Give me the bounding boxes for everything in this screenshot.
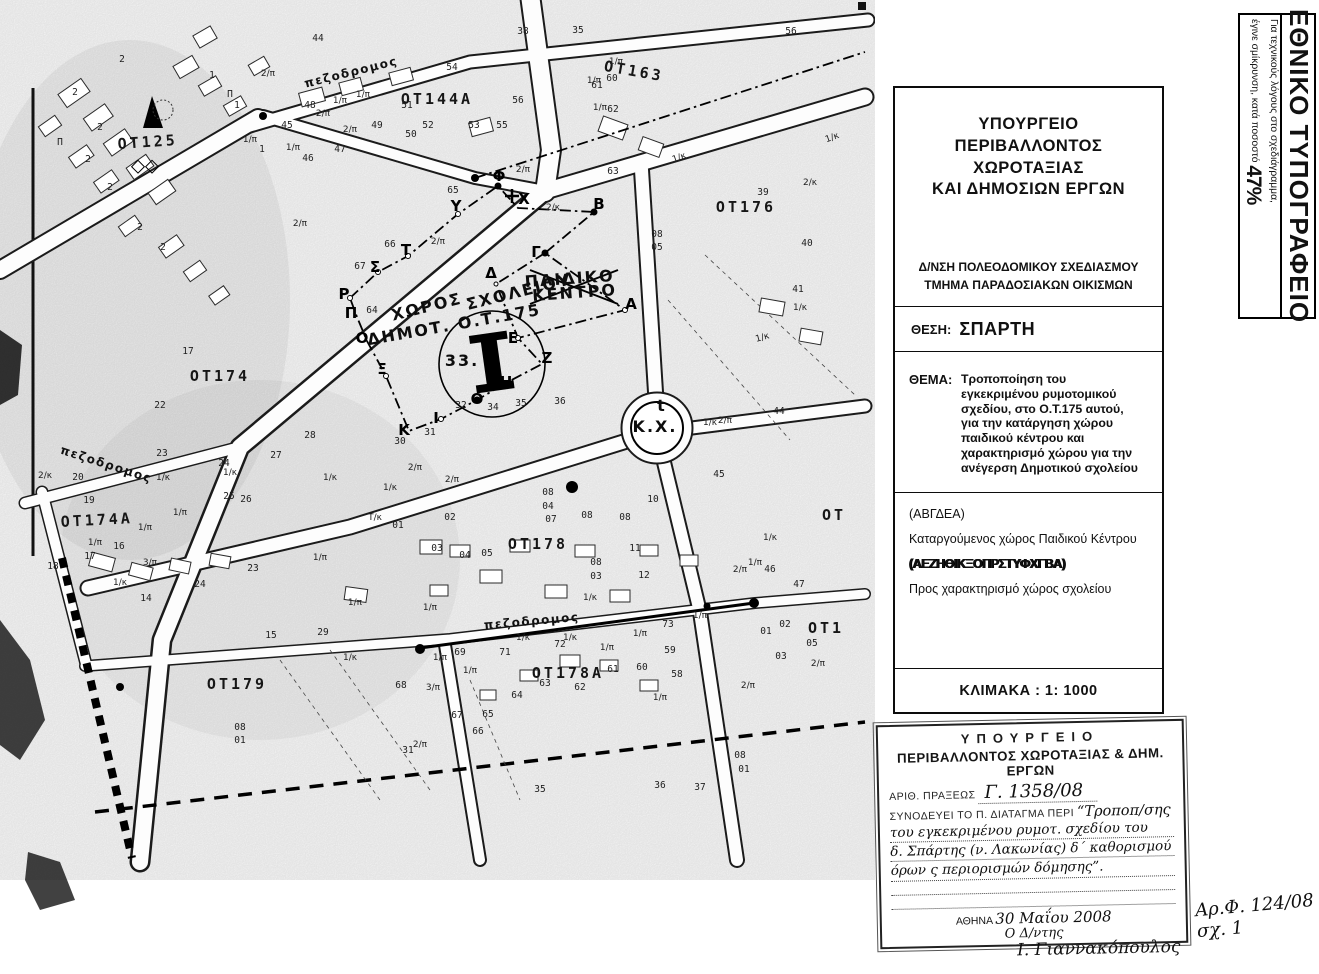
parcel-type-mark: 1/π [693,611,708,621]
ministry-line: ΠΕΡΙΒΑΛΛΟΝΤΟΣ [895,136,1162,158]
parcel-type-mark: 2/π [261,69,276,79]
parcel-number: 1 [234,100,240,111]
decree-value: “Τροποπ/σης [1077,802,1171,820]
parcel-type-mark: 1/π [587,76,602,86]
parcel-number: 22 [154,400,165,411]
parcel-number: 11 [629,543,641,554]
legend-code-2: (ΑΕΖΗΘΙΚΞΟΠΡΣΤΥΦΧΓΒΑ) [909,557,1162,571]
vertex-letter: Ι [433,409,439,427]
parcel-number: 61 [607,664,619,675]
parcel-number: 1 [259,144,265,155]
parcel-type-mark: 1/π [88,538,103,548]
parcel-number: 56 [785,26,797,37]
site-label: Κ.Χ. [633,417,678,436]
legend-section: (ΑΒΓΔΕΑ) Καταργούμενος χώρος Παιδικού Κέ… [895,492,1162,668]
parcel-number: 01 [738,764,750,775]
banner-percent: 47% [1242,165,1265,204]
directorate: Δ/ΝΣΗ ΠΟΛΕΟΔΟΜΙΚΟΥ ΣΧΕΔΙΑΣΜΟΥ [895,258,1162,276]
parcel-type-mark: 1/π [433,653,448,663]
parcel-type-mark: 1/π [243,135,258,145]
vertex-letter: Υ [450,197,463,215]
banner-note-line1: Για τεχνικούς λόγους στο σχεδιάγραμμα, [1268,19,1279,203]
parcel-type-mark: 1/κ [763,533,778,543]
parcel-number: 05 [481,548,492,559]
parcel-number: 2 [137,222,143,233]
ministry-line: ΧΩΡΟΤΑΞΙΑΣ [895,158,1162,180]
parcel-type-mark: 1/κ [343,653,358,663]
parcel-number: 71 [499,647,511,658]
parcel-number: 44 [773,406,785,417]
parcel-number: 48 [304,100,316,111]
parcel-number: 05 [651,242,662,253]
parcel-number: 28 [304,430,316,441]
parcel-number: 66 [384,239,396,250]
parcel-number: 36 [654,780,666,791]
parcel-number: 46 [764,564,776,575]
parcel-number: 2 [160,242,166,253]
vertex-letter: Ο [356,329,369,347]
block-label: ΟΤ174Α [60,509,133,531]
vertex-letter: Ζ [542,349,553,367]
parcel-type-mark: 1/π [313,553,328,563]
parcel-number: 53 [468,120,479,131]
file-reference-note: Αρ.Φ. 124/08 σχ. 1 [1194,891,1316,943]
parcel-number: 10 [647,494,659,505]
block-label: ΟΤ179 [207,675,267,693]
parcel-type-mark: 2/π [316,109,331,119]
parcel-number: 45 [713,469,724,480]
scale-section: ΚΛΙΜΑΚΑ : 1: 1000 [895,668,1162,712]
parcel-number: 62 [574,682,585,693]
parcel-number: 08 [651,229,663,240]
vertex-letter: Ξ [377,360,386,378]
parcel-number: 01 [760,626,772,637]
parcel-type-mark: 1/π [138,523,153,533]
approval-stamp: ΥΠΟΥΡΓΕΙΟ ΠΕΡΙΒΑΛΛΟΝΤΟΣ ΧΩΡΟΤΑΞΙΑΣ & ΔΗΜ… [876,719,1189,949]
parcel-number: 64 [511,690,523,701]
block-label: ΟΤ174 [190,367,250,385]
parcel-type-mark: 1/π [600,643,615,653]
parcel-type-mark: 2/π [445,475,460,485]
ministry-line: ΥΠΟΥΡΓΕΙΟ [895,114,1162,136]
parcel-type-mark: 1/π [286,143,301,153]
parcel-number: 54 [446,62,458,73]
parcel-type-mark: 1/κ [223,468,238,478]
parcel-number: 05 [806,638,817,649]
parcel-number: 04 [459,550,471,561]
vertex-letter: Α [625,295,637,313]
vertex-letter: Ρ [339,285,350,303]
parcel-number: 63 [539,678,550,689]
vertex-letter: Ε [508,329,518,347]
parcel-number: 34 [487,402,499,413]
parcel-type-mark: 1/κ [113,578,128,588]
location-value: ΣΠΑΡΤΗ [959,319,1035,340]
parcel-number: 27 [270,450,281,461]
parcel-number: 35 [572,25,583,36]
parcel-number: 65 [482,709,493,720]
parcel-number: 2 [119,54,125,65]
parcel-number: 24 [194,579,206,590]
parcel-type-mark: 1/κ [583,593,598,603]
parcel-number: 03 [590,571,601,582]
vertex-letter: Τ [401,241,412,259]
parcel-number: 01 [392,520,404,531]
parcel-number: 51 [401,100,413,111]
parcel-number: 47 [334,144,345,155]
parcel-number: 20 [72,472,84,483]
parcel-type-mark: 2/π [293,219,308,229]
vertex-letter: Θ [471,390,484,408]
parcel-type-mark: 1/π [348,598,363,608]
parcel-number: 03 [431,543,442,554]
vertex-letter: Η [500,373,513,391]
parcel-number: 07 [545,514,556,525]
legend-code-1: (ΑΒΓΔΕΑ) [909,507,1162,521]
parcel-number: 23 [156,448,167,459]
vertex-letter: Γ [531,243,541,261]
date-value: 30 Μαΐου 2008 [995,907,1112,927]
parcel-type-mark: 2/π [741,681,756,691]
parcel-number: 60 [636,662,648,673]
parcel-number: 59 [664,645,676,656]
title-block: ΥΠΟΥΡΓΕΙΟ ΠΕΡΙΒΑΛΛΟΝΤΟΣ ΧΩΡΟΤΑΞΙΑΣ ΚΑΙ Δ… [893,86,1164,714]
parcel-type-mark: 2/π [408,463,423,473]
parcel-type-mark: 1/π [653,693,668,703]
parcel-number: 66 [472,726,484,737]
legend-desc-2: Προς χαρακτηρισμό χώρος σχολείου [909,582,1162,596]
parcel-number: 37 [694,782,705,793]
parcel-number: 2 [85,154,91,165]
parcel-type-mark: 2/π [343,125,358,135]
parcel-number: 40 [801,238,813,249]
ministry-section: ΥΠΟΥΡΓΕΙΟ ΠΕΡΙΒΑΛΛΟΝΤΟΣ ΧΩΡΟΤΑΞΙΑΣ ΚΑΙ Δ… [895,88,1162,306]
parcel-type-mark: 1/π [593,103,608,113]
location-section: ΘΕΣΗ: ΣΠΑΡΤΗ [895,306,1162,351]
parcel-type-mark: 1/π [423,603,438,613]
block-label: ΟΤ [822,506,846,524]
parcel-number: 08 [542,487,554,498]
vertex-letter: Χ [518,190,530,208]
parcel-number: 52 [422,120,433,131]
banner-note: Για τεχνικούς λόγους στο σχεδιάγραμμα, έ… [1240,15,1280,317]
city-label: ΑΘΗΝΑ [956,915,993,928]
parcel-number: 55 [496,120,507,131]
parcel-number: 15 [265,630,276,641]
scale-value: ΚΛΙΜΑΚΑ : 1: 1000 [959,683,1097,699]
parcel-number: 03 [775,651,786,662]
parcel-number: 36 [554,396,566,407]
act-number-value: Γ. 1358/08 [978,780,1097,804]
parcel-type-mark: 2/π [431,237,446,247]
parcel-type-mark: 2/π [733,565,748,575]
parcel-number: 30 [394,436,406,447]
parcel-number: 18 [47,561,59,572]
parcel-type-mark: 2/π [811,659,826,669]
banner-title: ΕΘΝΙΚΟ ΤΥΠΟΓΡΑΦΕΙΟ [1280,15,1314,317]
parcel-number: 02 [779,619,790,630]
parcel-number: 47 [793,579,804,590]
parcel-number: 69 [454,647,466,658]
stamp-header-1: ΥΠΟΥΡΓΕΙΟ [888,727,1172,748]
parcel-number: 64 [366,305,378,316]
parcel-number: 65 [447,185,458,196]
parcel-number: 73 [662,619,673,630]
parcel-number: 44 [312,33,324,44]
block-label: ΟΤ178 [508,535,568,553]
parcel-number: 46 [302,153,314,164]
vertex-letter: Φ [493,167,506,185]
parcel-type-mark: 1/π [633,629,648,639]
location-label: ΘΕΣΗ: [911,322,951,337]
parcel-type-mark: 1/π [356,90,371,100]
parcel-type-mark: 1/π [333,96,348,106]
parcel-type-mark: 2/κ [38,471,53,481]
parcel-number: 31 [424,427,436,438]
parcel-type-mark: 3/π [426,683,441,693]
vertex-letter: Σ [370,258,380,276]
parcel-number: 23 [247,563,258,574]
parcel-number: 1 [209,70,215,81]
parcel-number: 45 [281,120,292,131]
parcel-number: 08 [734,750,746,761]
signature: Ι. Γιαννακόπουλος [1017,937,1181,960]
vertex-letter: Π [345,304,358,322]
act-number-label: ΑΡΙΘ. ΠΡΑΞΕΩΣ [889,789,976,803]
parcel-number: 25 [223,491,234,502]
subject-section: ΘΕΜΑ: Τροποποίηση του εγκεκριμένου ρυμοτ… [895,351,1162,492]
parcel-type-mark: 1/κ [323,473,338,483]
block-label: ΟΤ1 [808,619,844,637]
parcel-type-mark: 1/κ [383,483,398,493]
department: ΤΜΗΜΑ ΠΑΡΑΔΟΣΙΑΚΩΝ ΟΙΚΙΣΜΩΝ [895,276,1162,294]
parcel-number: 58 [671,669,683,680]
parcel-number: 2 [107,182,113,193]
parcel-type-mark: 1/κ [563,633,578,643]
national-printing-office-banner: ΕΘΝΙΚΟ ΤΥΠΟΓΡΑΦΕΙΟ Για τεχνικούς λόγους … [1238,13,1316,319]
parcel-type-mark: 1/κ [516,633,531,643]
subject-label: ΘΕΜΑ: [909,372,952,387]
parcel-number: 29 [317,627,329,638]
subject-text: Τροποποίηση του εγκεκριμένου ρυμοτομικού… [961,372,1138,475]
parcel-number: 56 [512,95,524,106]
parcel-number: 04 [542,501,554,512]
stamp-act-number-row: ΑΡΙΘ. ΠΡΑΞΕΩΣ Γ. 1358/08 [889,778,1173,805]
vertex-letter: Δ [485,264,497,282]
parcel-number: 41 [792,284,804,295]
parcel-number: 17 [84,551,95,562]
parcel-number: 12 [638,570,649,581]
parcel-type-mark: 1/π [748,558,763,568]
parcel-number: 67 [451,710,462,721]
parcel-number: 08 [619,512,631,523]
parcel-number: 17 [182,346,193,357]
parcel-type-mark: 2/π [718,416,733,426]
ministry-line: ΚΑΙ ΔΗΜΟΣΙΩΝ ΕΡΓΩΝ [895,179,1162,201]
parcel-number: 16 [113,541,125,552]
parcel-type-mark: 1/π [609,57,624,67]
parcel-number: 01 [234,735,246,746]
scanned-town-plan-sheet: ΟΤ125ΟΤ144ΑΟΤ163ΟΤ176ΟΤ174ΟΤ174ΑΟΤ178ΟΤ1… [0,0,1319,974]
parcel-number: Π [227,89,233,100]
parcel-type-mark: 3/π [143,558,158,568]
parcel-type-mark: 1/κ [703,418,718,428]
parcel-type-mark: Τ/κ [367,513,383,523]
parcel-number: 14 [140,593,152,604]
parcel-number: 67 [354,261,365,272]
parcel-type-mark: 2/π [516,165,531,175]
parcel-number: Π [57,137,63,148]
parcel-number: 63 [607,166,618,177]
parcel-number: 19 [83,495,95,506]
parcel-number: 38 [517,26,529,37]
parcel-number: 49 [371,120,383,131]
site-label: 33. [445,351,479,370]
parcel-number: 26 [240,494,252,505]
parcel-number: 32 [455,400,466,411]
parcel-number: 60 [606,73,618,84]
parcel-type-mark: 1/κ [793,303,808,313]
parcel-type-mark: 1/π [173,508,188,518]
parcel-type-mark: 2/κ [803,178,818,188]
parcel-type-mark: 1/κ [156,473,171,483]
parcel-number: 68 [395,680,407,691]
parcel-number: 08 [234,722,246,733]
site-label: t [657,396,667,415]
parcel-number: 02 [444,512,455,523]
parcel-type-mark: 2/κ [546,203,561,213]
parcel-number: 2 [72,87,78,98]
parcel-number: 50 [405,129,417,140]
parcel-number: 39 [757,187,769,198]
parcel-type-mark: 2/π [413,740,428,750]
parcel-number: 08 [590,557,602,568]
parcel-type-mark: 1/π [463,666,478,676]
banner-note-line2: έγινε σμίκρυνση, κατά ποσοστό [1249,19,1260,162]
vertex-letter: Β [593,195,604,213]
parcel-number: 62 [607,104,618,115]
block-label: ΟΤ176 [716,198,776,216]
parcel-number: 35 [534,784,545,795]
legend-desc-1: Καταργούμενος χώρος Παιδικού Κέντρου [909,532,1162,546]
parcel-number: 08 [581,510,593,521]
parcel-number: 35 [515,398,526,409]
stamp-header-2: ΠΕΡΙΒΑΛΛΟΝΤΟΣ ΧΩΡΟΤΑΞΙΑΣ & ΔΗΜ. ΕΡΓΩΝ [888,745,1173,781]
parcel-number: 2 [97,122,103,133]
town-plan-map: ΟΤ125ΟΤ144ΑΟΤ163ΟΤ176ΟΤ174ΟΤ174ΑΟΤ178ΟΤ1… [0,0,875,974]
